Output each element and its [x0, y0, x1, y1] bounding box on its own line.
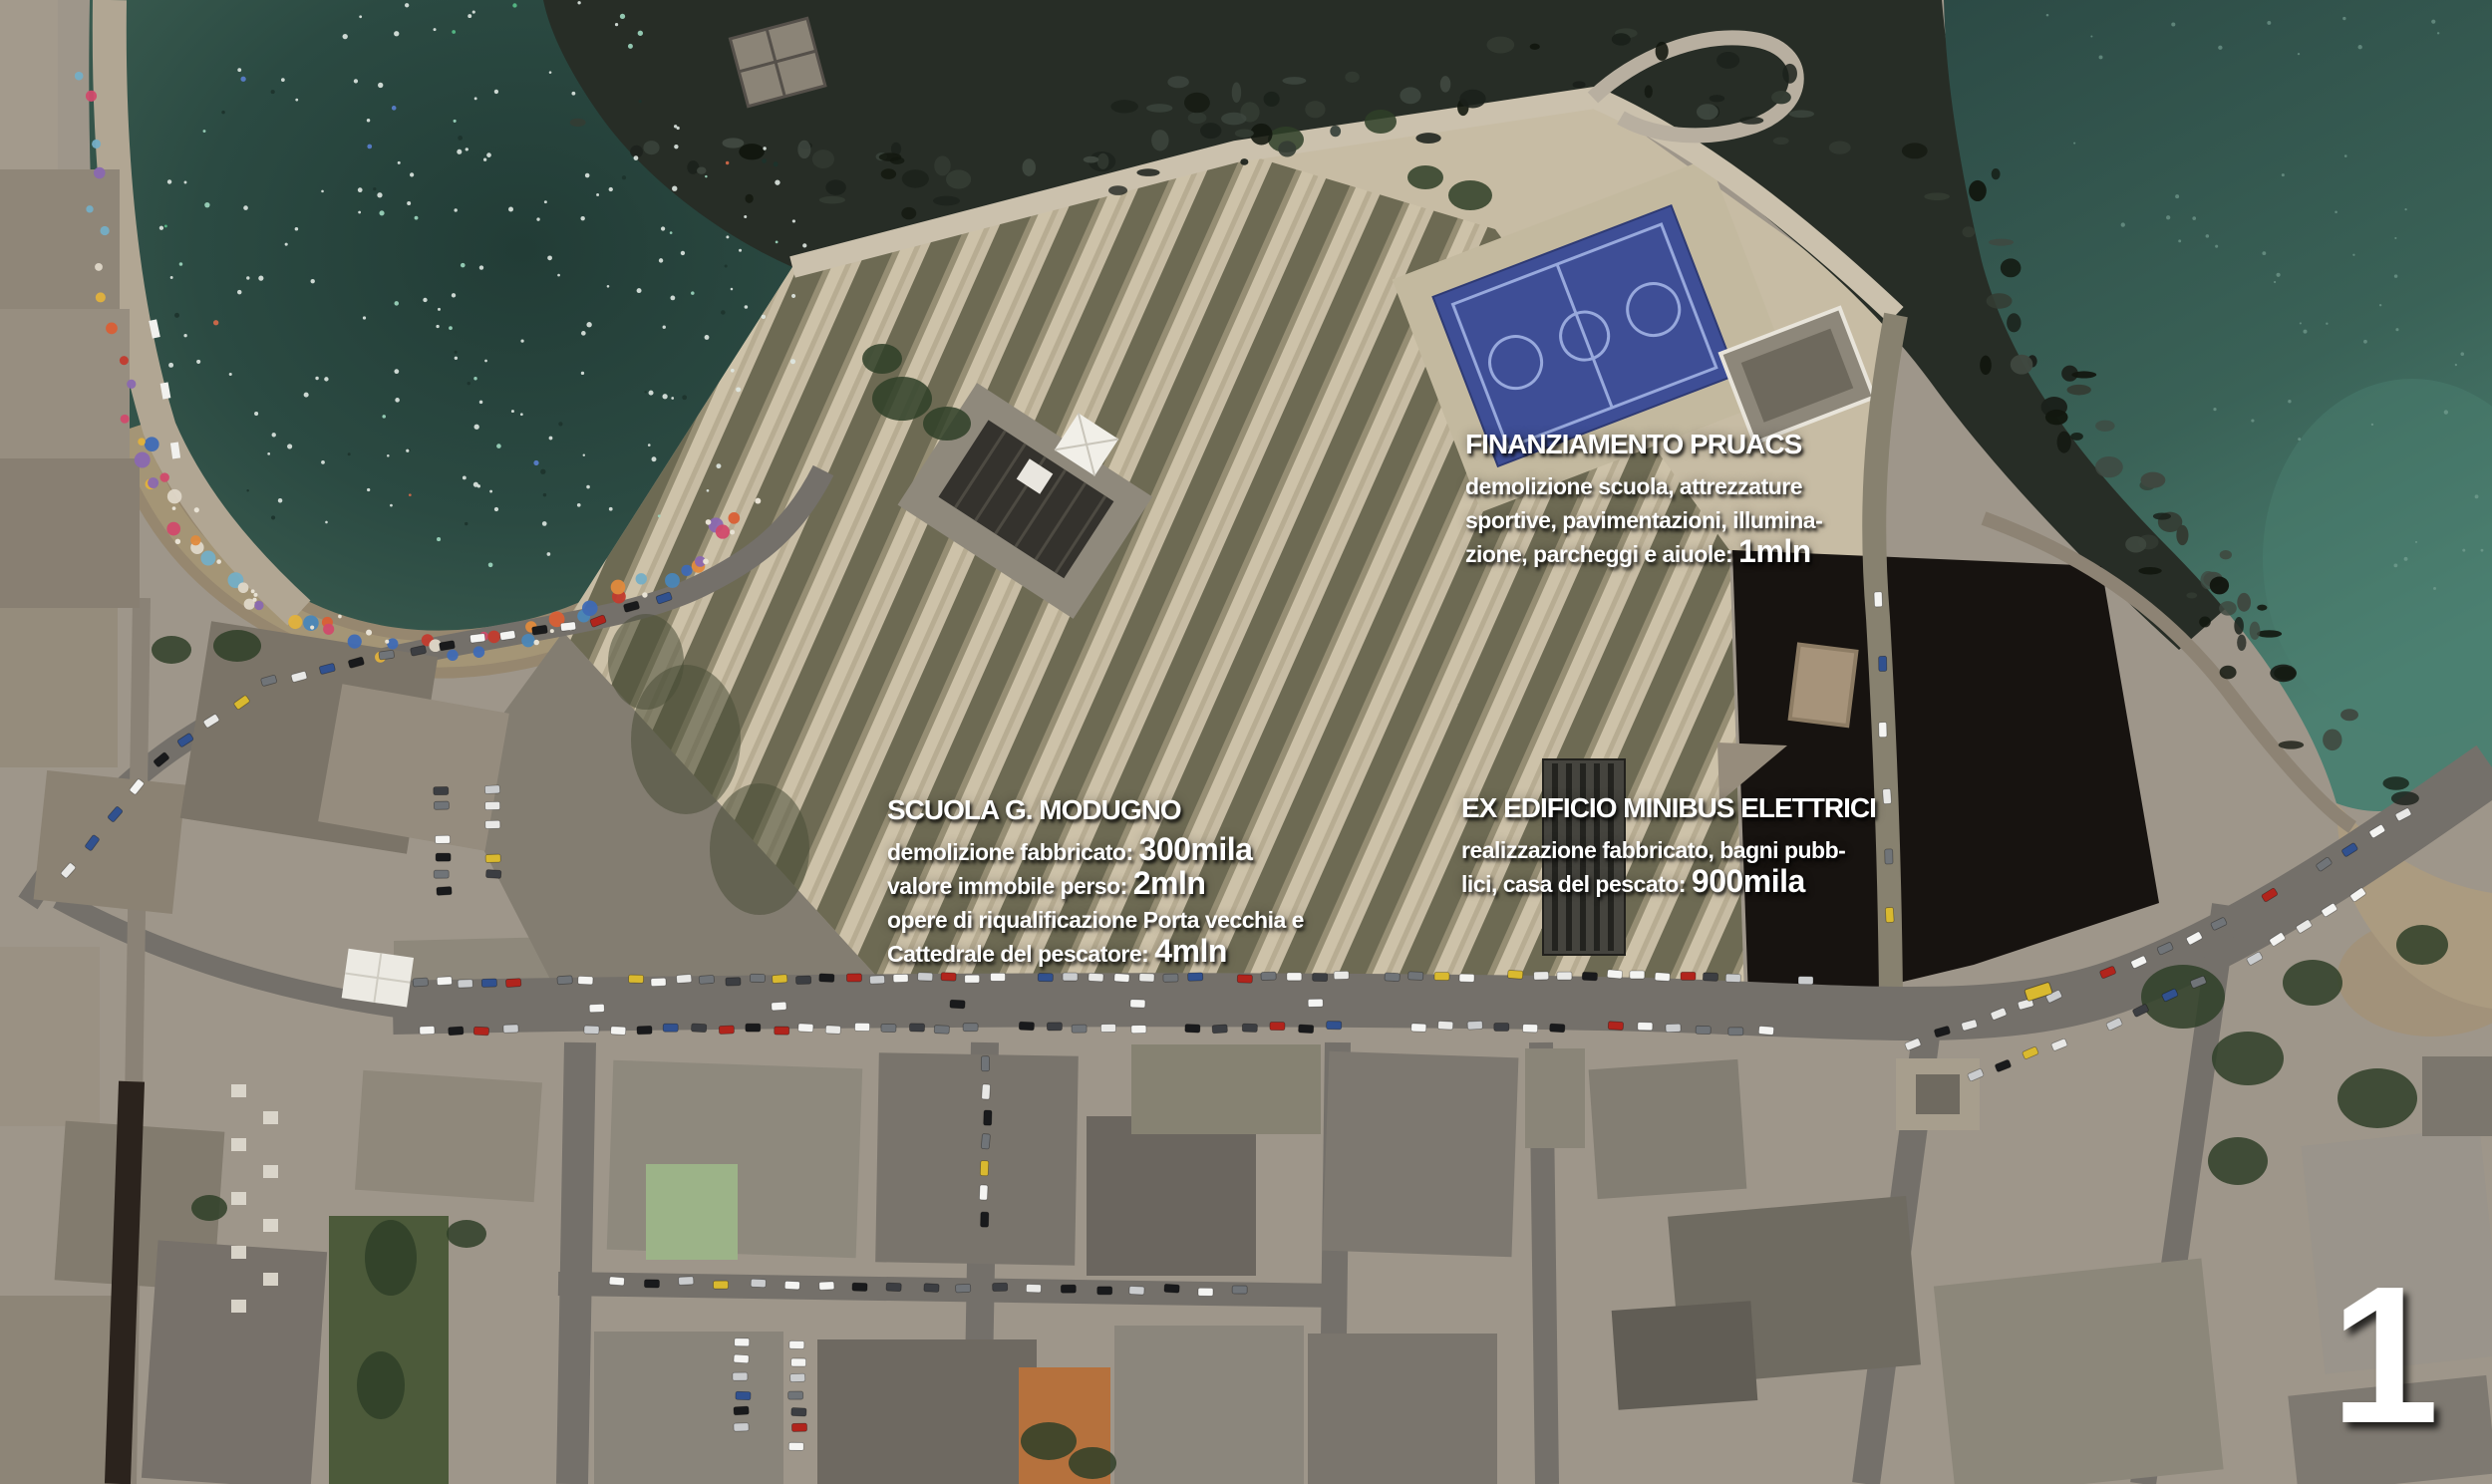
annotation-title: EX EDIFICIO MINIBUS ELETTRICI: [1461, 792, 1876, 824]
annotation-title: SCUOLA G. MODUGNO: [887, 794, 1304, 826]
annotation-scuola-g-modugno: SCUOLA G. MODUGNO demolizione fabbricato…: [887, 794, 1304, 970]
annotation-line: lici, casa del pescato: 900mila: [1461, 866, 1876, 900]
annotation-title: FINANZIAMENTO PRUACS: [1465, 429, 1822, 460]
annotation-line: Cattedrale del pescatore: 4mln: [887, 936, 1304, 970]
annotation-finanziamento-pruacs: FINANZIAMENTO PRUACS demolizione scuola,…: [1465, 429, 1822, 570]
annotation-line: realizzazione fabbricato, bagni pubb-: [1461, 832, 1876, 866]
annotation-ex-edificio-minibus: EX EDIFICIO MINIBUS ELETTRICI realizzazi…: [1461, 792, 1876, 900]
annotation-line: opere di riqualificazione Porta vecchia …: [887, 902, 1304, 936]
page-number: 1: [2331, 1258, 2439, 1453]
annotation-line: valore immobile perso: 2mln: [887, 868, 1304, 902]
annotation-line: zione, parcheggi e aiuole: 1mln: [1465, 536, 1822, 570]
annotation-line: demolizione scuola, attrezzature: [1465, 468, 1822, 502]
aerial-map-infographic: FINANZIAMENTO PRUACS demolizione scuola,…: [0, 0, 2492, 1484]
annotation-line: sportive, pavimentazioni, illumina-: [1465, 502, 1822, 536]
satellite-map: [0, 0, 2492, 1484]
annotation-line: demolizione fabbricato: 300mila: [887, 834, 1304, 868]
